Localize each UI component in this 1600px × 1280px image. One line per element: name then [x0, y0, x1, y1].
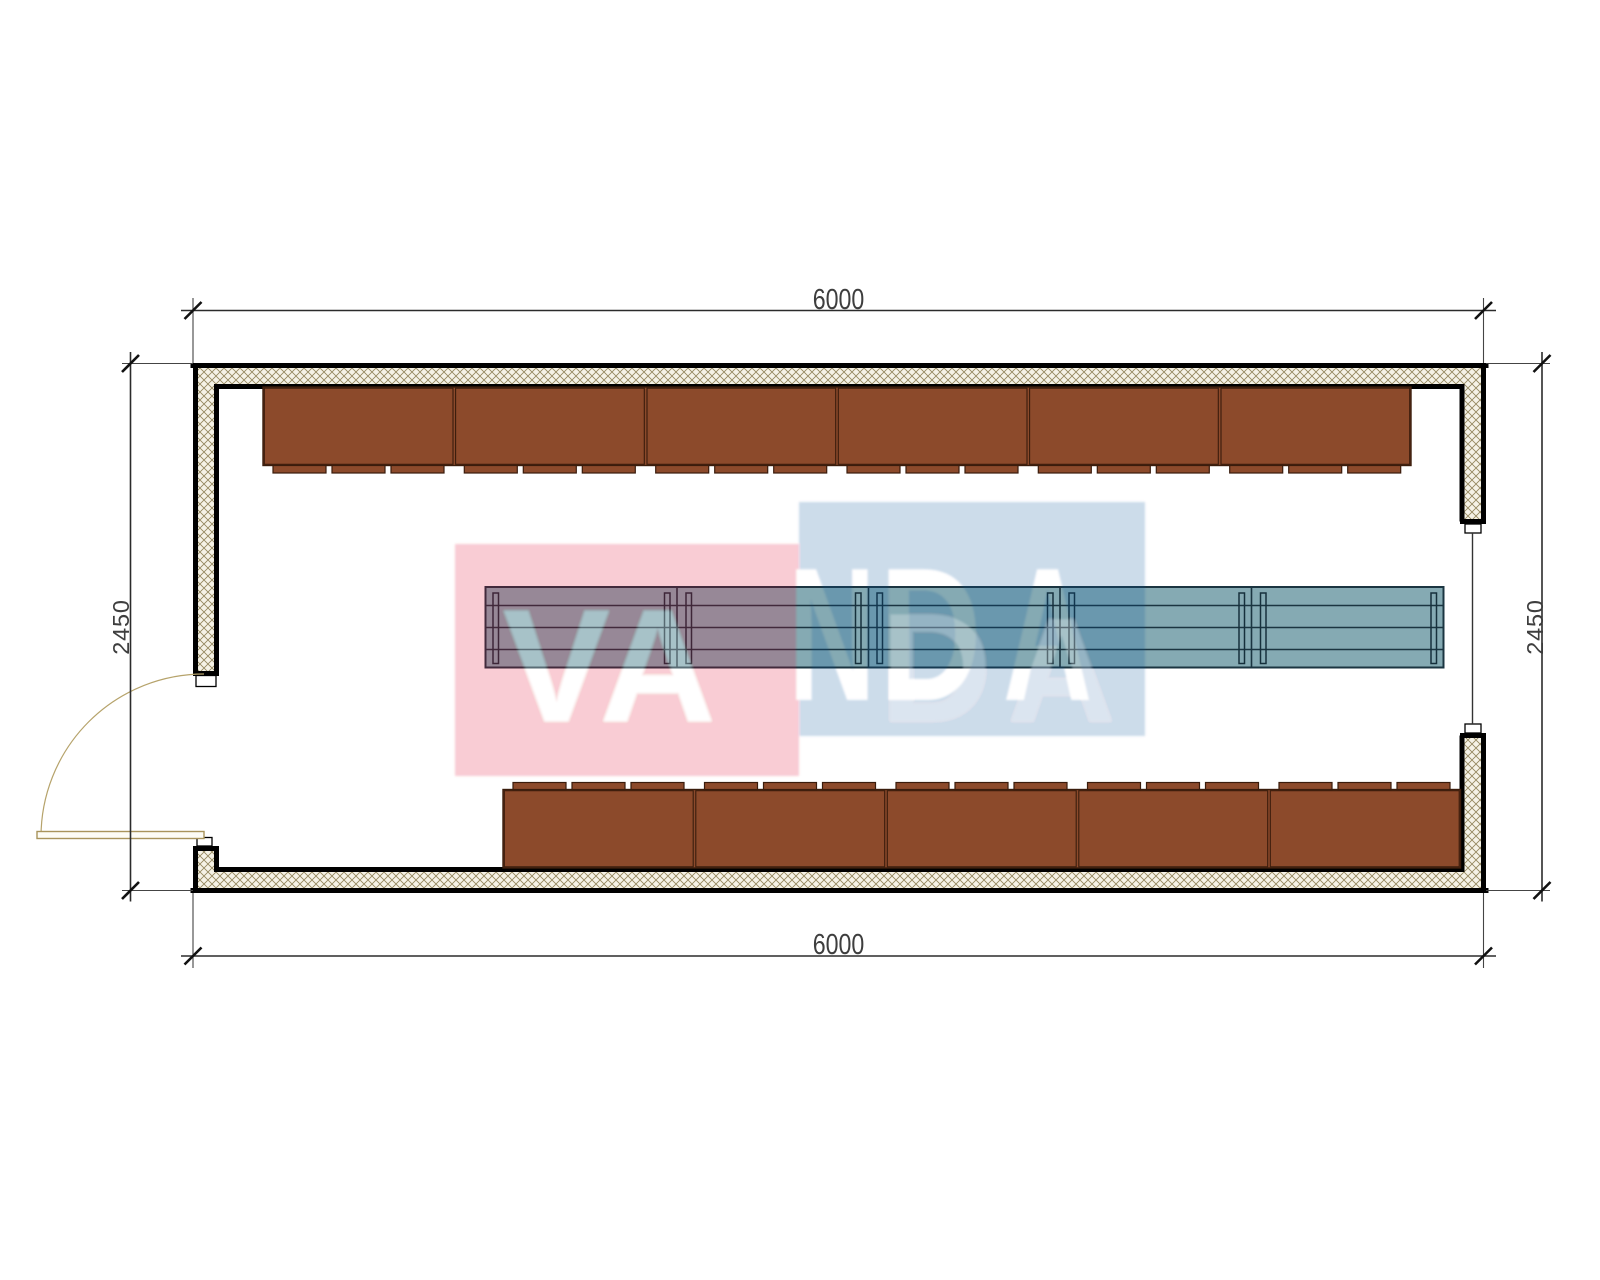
svg-text:6000: 6000 — [813, 927, 865, 960]
svg-text:2450: 2450 — [108, 599, 134, 654]
svg-text:2450: 2450 — [1522, 599, 1548, 654]
svg-text:6000: 6000 — [813, 282, 865, 315]
svg-text:A: A — [1008, 588, 1115, 753]
svg-text:VA: VA — [503, 576, 717, 755]
svg-text:D: D — [880, 581, 992, 754]
